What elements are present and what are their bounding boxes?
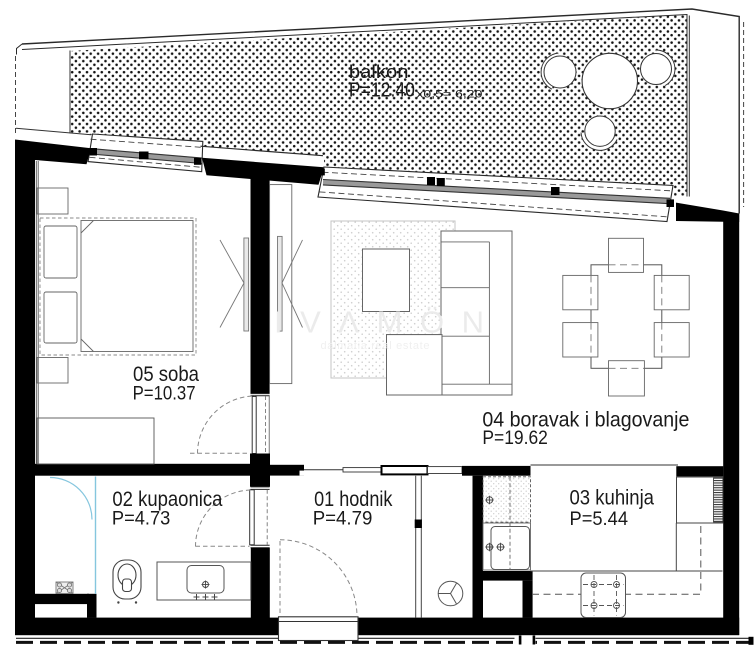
svg-text:P=12.40: P=12.40 bbox=[349, 80, 415, 102]
svg-text:P=10.37: P=10.37 bbox=[133, 382, 196, 404]
svg-text:03 kuhinja: 03 kuhinja bbox=[570, 487, 655, 510]
svg-text:x0,5= 6,20: x0,5= 6,20 bbox=[416, 88, 482, 100]
svg-text:P=5.44: P=5.44 bbox=[570, 508, 629, 530]
svg-text:dalmatia real estate: dalmatia real estate bbox=[321, 340, 430, 352]
svg-text:P=4.73: P=4.73 bbox=[112, 507, 170, 529]
svg-text:P=4.79: P=4.79 bbox=[313, 508, 373, 530]
svg-text:P=19.62: P=19.62 bbox=[482, 427, 548, 449]
